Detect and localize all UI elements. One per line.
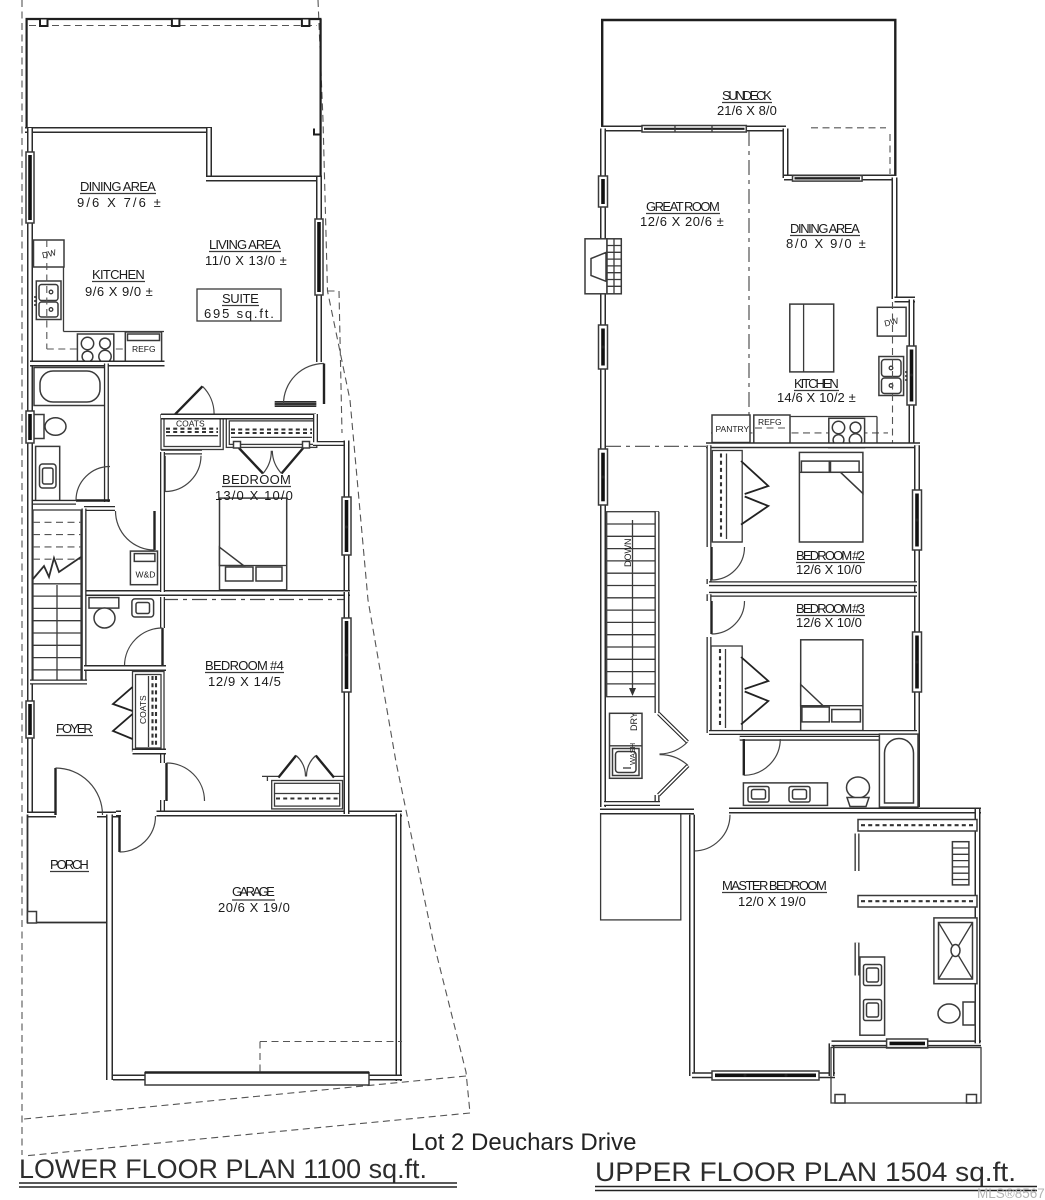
- svg-text:BEDROOM #3: BEDROOM #3: [796, 601, 865, 616]
- svg-text:11/0 X 13/0 ±: 11/0 X 13/0 ±: [205, 253, 287, 268]
- svg-text:9/6 X 9/0 ±: 9/6 X 9/0 ±: [85, 284, 153, 299]
- svg-text:MLS®856708: MLS®856708: [977, 1186, 1045, 1200]
- svg-text:9/6 X 7/6 ±: 9/6 X 7/6 ±: [77, 195, 161, 210]
- svg-text:21/6 X 8/0: 21/6 X 8/0: [717, 103, 777, 118]
- svg-text:LIVING AREA: LIVING AREA: [209, 237, 281, 252]
- svg-text:REFG: REFG: [758, 417, 782, 427]
- svg-text:MASTER BEDROOM: MASTER BEDROOM: [722, 878, 827, 893]
- svg-text:COATS: COATS: [138, 695, 148, 724]
- svg-text:GARAGE: GARAGE: [232, 884, 275, 899]
- svg-text:FOYER: FOYER: [56, 721, 93, 736]
- svg-text:PORCH: PORCH: [50, 857, 89, 872]
- svg-text:12/6 X 10/0: 12/6 X 10/0: [796, 562, 862, 577]
- svg-text:LOWER FLOOR PLAN 1100 sq: LOWER FLOOR PLAN 1100 sq.ft.: [19, 1154, 427, 1184]
- svg-text:UPPER FLOOR PLAN 1504 s: UPPER FLOOR PLAN 1504 sq.ft.: [595, 1157, 1016, 1187]
- svg-text:8/0 X 9/0 ±: 8/0 X 9/0 ±: [786, 236, 866, 251]
- svg-text:SUNDECK: SUNDECK: [722, 88, 772, 103]
- svg-text:REFG: REFG: [132, 344, 156, 354]
- svg-text:WASH: WASH: [628, 743, 637, 765]
- svg-text:KITCHEN: KITCHEN: [794, 376, 839, 391]
- svg-text:PANTRY: PANTRY: [716, 424, 750, 434]
- svg-text:BEDROOM: BEDROOM: [222, 472, 291, 487]
- svg-text:Lot 2 Deuchars Drive: Lot 2 Deuchars Drive: [411, 1129, 636, 1156]
- svg-text:14/6 X 10/2 ±: 14/6 X 10/2 ±: [777, 390, 856, 405]
- svg-text:13/0 X 10/0: 13/0 X 10/0: [215, 488, 293, 503]
- svg-text:12/6 X 10/0: 12/6 X 10/0: [796, 615, 862, 630]
- svg-text:COATS: COATS: [176, 419, 205, 429]
- svg-text:GREAT ROOM: GREAT ROOM: [646, 199, 720, 214]
- svg-text:DOWN: DOWN: [623, 539, 633, 568]
- svg-text:BEDROOM #2: BEDROOM #2: [796, 548, 865, 563]
- svg-text:DRY: DRY: [629, 712, 639, 731]
- svg-text:W&D: W&D: [136, 570, 156, 580]
- svg-text:DINING AREA: DINING AREA: [80, 179, 156, 194]
- svg-text:20/6 X 19/0: 20/6 X 19/0: [218, 900, 290, 915]
- svg-text:KITCHEN: KITCHEN: [92, 267, 145, 282]
- svg-text:12/9 X 14/5: 12/9 X 14/5: [208, 674, 281, 689]
- svg-text:SUITE: SUITE: [222, 291, 259, 306]
- svg-text:12/0 X 19/0: 12/0 X 19/0: [738, 894, 806, 909]
- svg-text:BEDROOM #4: BEDROOM #4: [205, 658, 284, 673]
- svg-text:12/6 X 20/6 ±: 12/6 X 20/6 ±: [640, 214, 724, 229]
- svg-text:DINING AREA: DINING AREA: [790, 221, 860, 236]
